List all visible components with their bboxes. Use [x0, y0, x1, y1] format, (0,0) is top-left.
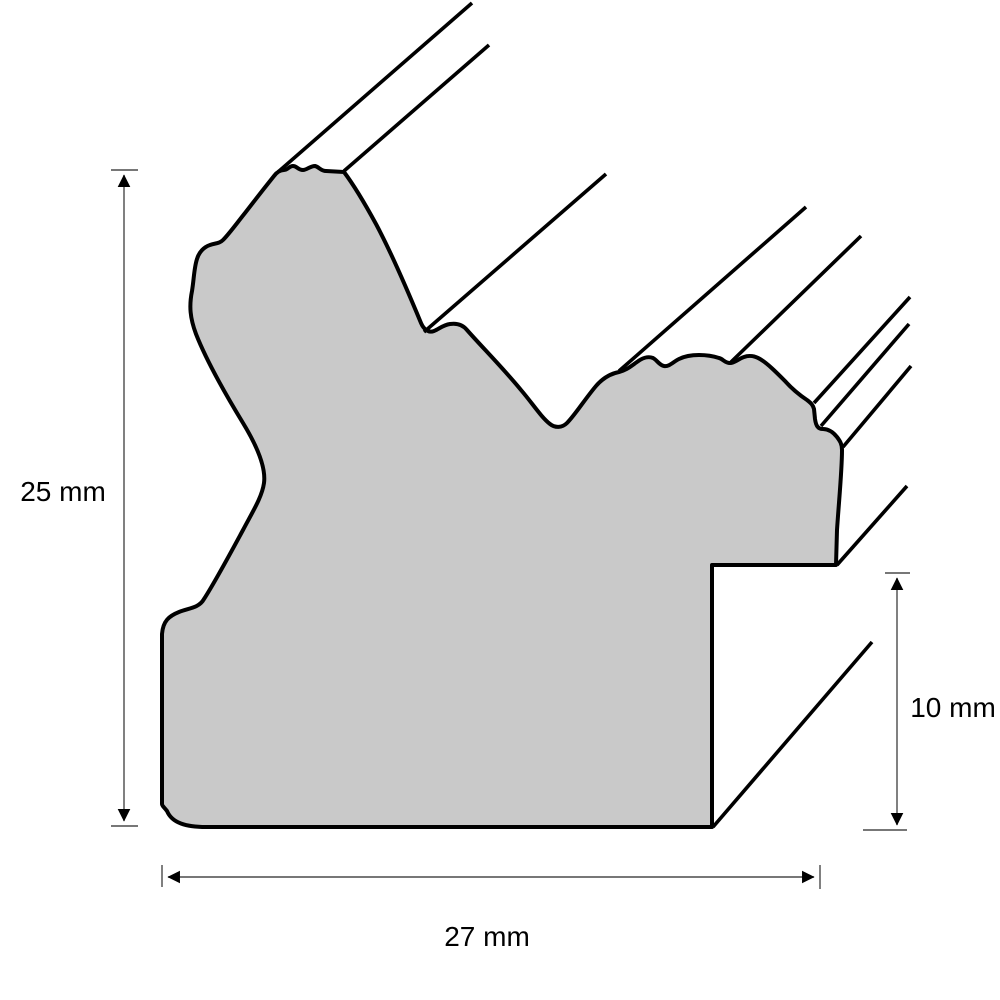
rabbet-depth-dimension: 10 mm [863, 573, 996, 830]
projection-line [278, 3, 472, 172]
projection-line [424, 174, 606, 332]
width-dimension-label: 27 mm [444, 921, 530, 952]
height-dimension-label: 25 mm [20, 476, 106, 507]
rabbet-dimension-label: 10 mm [910, 692, 996, 723]
projection-line [713, 642, 872, 827]
projection-line [843, 366, 911, 447]
projection-line [837, 486, 907, 565]
height-dimension: 25 mm [20, 170, 138, 826]
moulding-cross-section-diagram: 25 mm 10 mm 27 mm [0, 0, 1000, 1000]
width-dimension: 27 mm [162, 865, 820, 952]
projection-line [344, 45, 489, 171]
projection-line [821, 324, 909, 426]
projection-line [619, 207, 806, 371]
